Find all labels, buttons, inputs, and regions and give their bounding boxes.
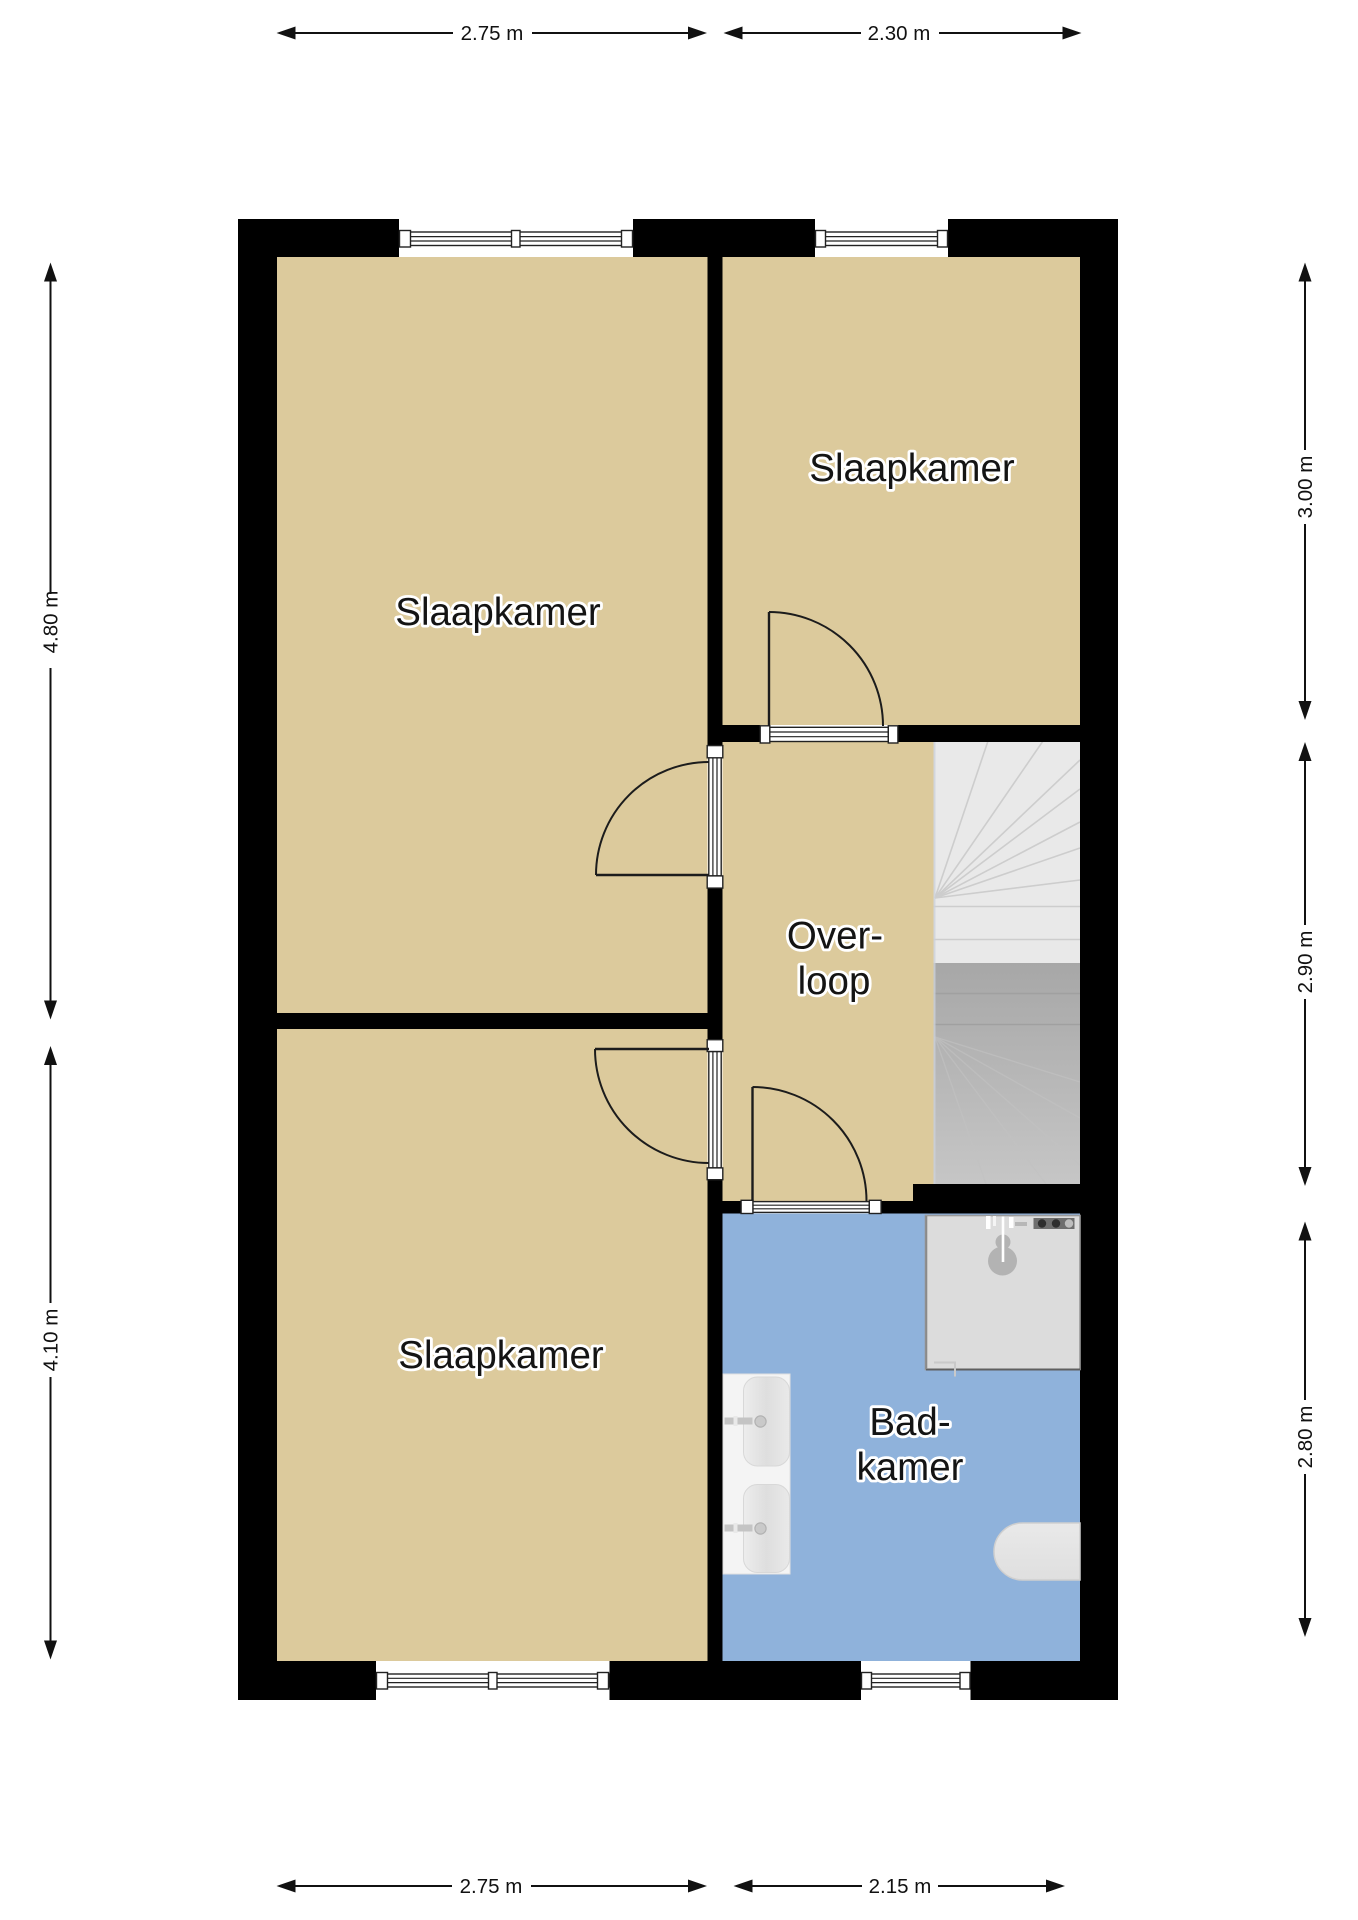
svg-text:2.30 m: 2.30 m [868, 22, 931, 45]
svg-text:2.75 m: 2.75 m [460, 1875, 523, 1898]
svg-text:2.90 m: 2.90 m [1294, 931, 1317, 994]
svg-text:Slaapkamer: Slaapkamer [809, 447, 1015, 490]
svg-text:Bad-: Bad- [869, 1401, 950, 1444]
svg-text:3.00 m: 3.00 m [1294, 456, 1317, 519]
svg-text:2.80 m: 2.80 m [1294, 1406, 1317, 1469]
svg-text:kamer: kamer [857, 1446, 964, 1489]
svg-text:4.10 m: 4.10 m [40, 1309, 63, 1372]
svg-text:Over-: Over- [787, 915, 883, 958]
svg-text:4.80 m: 4.80 m [40, 591, 63, 654]
svg-text:Slaapkamer: Slaapkamer [395, 591, 601, 634]
svg-text:2.15 m: 2.15 m [869, 1875, 932, 1898]
svg-text:2.75 m: 2.75 m [461, 22, 524, 45]
svg-text:loop: loop [798, 960, 871, 1003]
svg-text:Slaapkamer: Slaapkamer [398, 1334, 604, 1377]
